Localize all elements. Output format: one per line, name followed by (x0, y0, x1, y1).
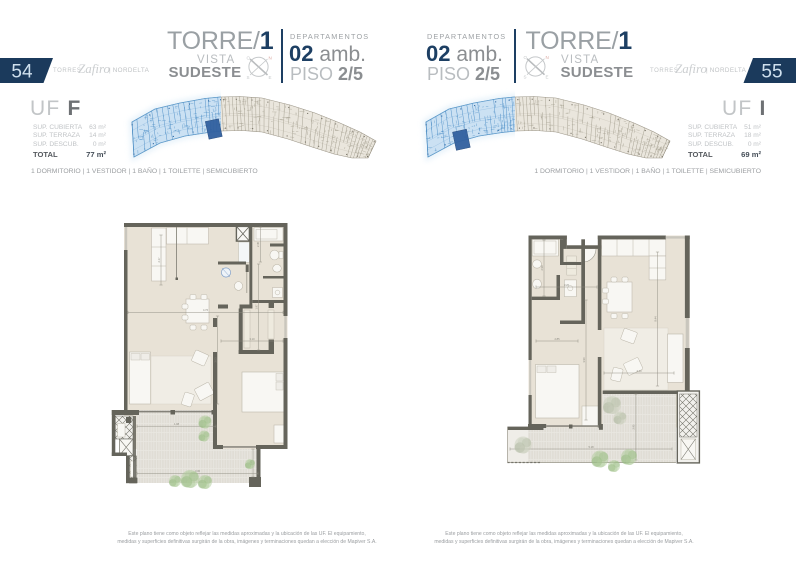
svg-text:3.10: 3.10 (249, 337, 255, 341)
svg-text:2.17: 2.17 (157, 257, 161, 263)
svg-text:3.20: 3.20 (564, 283, 570, 287)
svg-text:2.85: 2.85 (554, 337, 560, 341)
svg-text:4.76: 4.76 (203, 308, 209, 312)
svg-text:4.10: 4.10 (636, 369, 642, 373)
svg-text:3.03: 3.03 (213, 357, 217, 363)
svg-text:8.44: 8.44 (653, 316, 657, 322)
svg-text:5.18: 5.18 (588, 445, 594, 449)
svg-text:2.45: 2.45 (256, 241, 260, 247)
svg-text:2.95: 2.95 (632, 424, 636, 430)
svg-text:2.98: 2.98 (540, 265, 544, 271)
svg-text:1.97: 1.97 (254, 304, 258, 310)
svg-text:3.90: 3.90 (582, 357, 586, 363)
svg-text:1.98: 1.98 (174, 422, 180, 426)
